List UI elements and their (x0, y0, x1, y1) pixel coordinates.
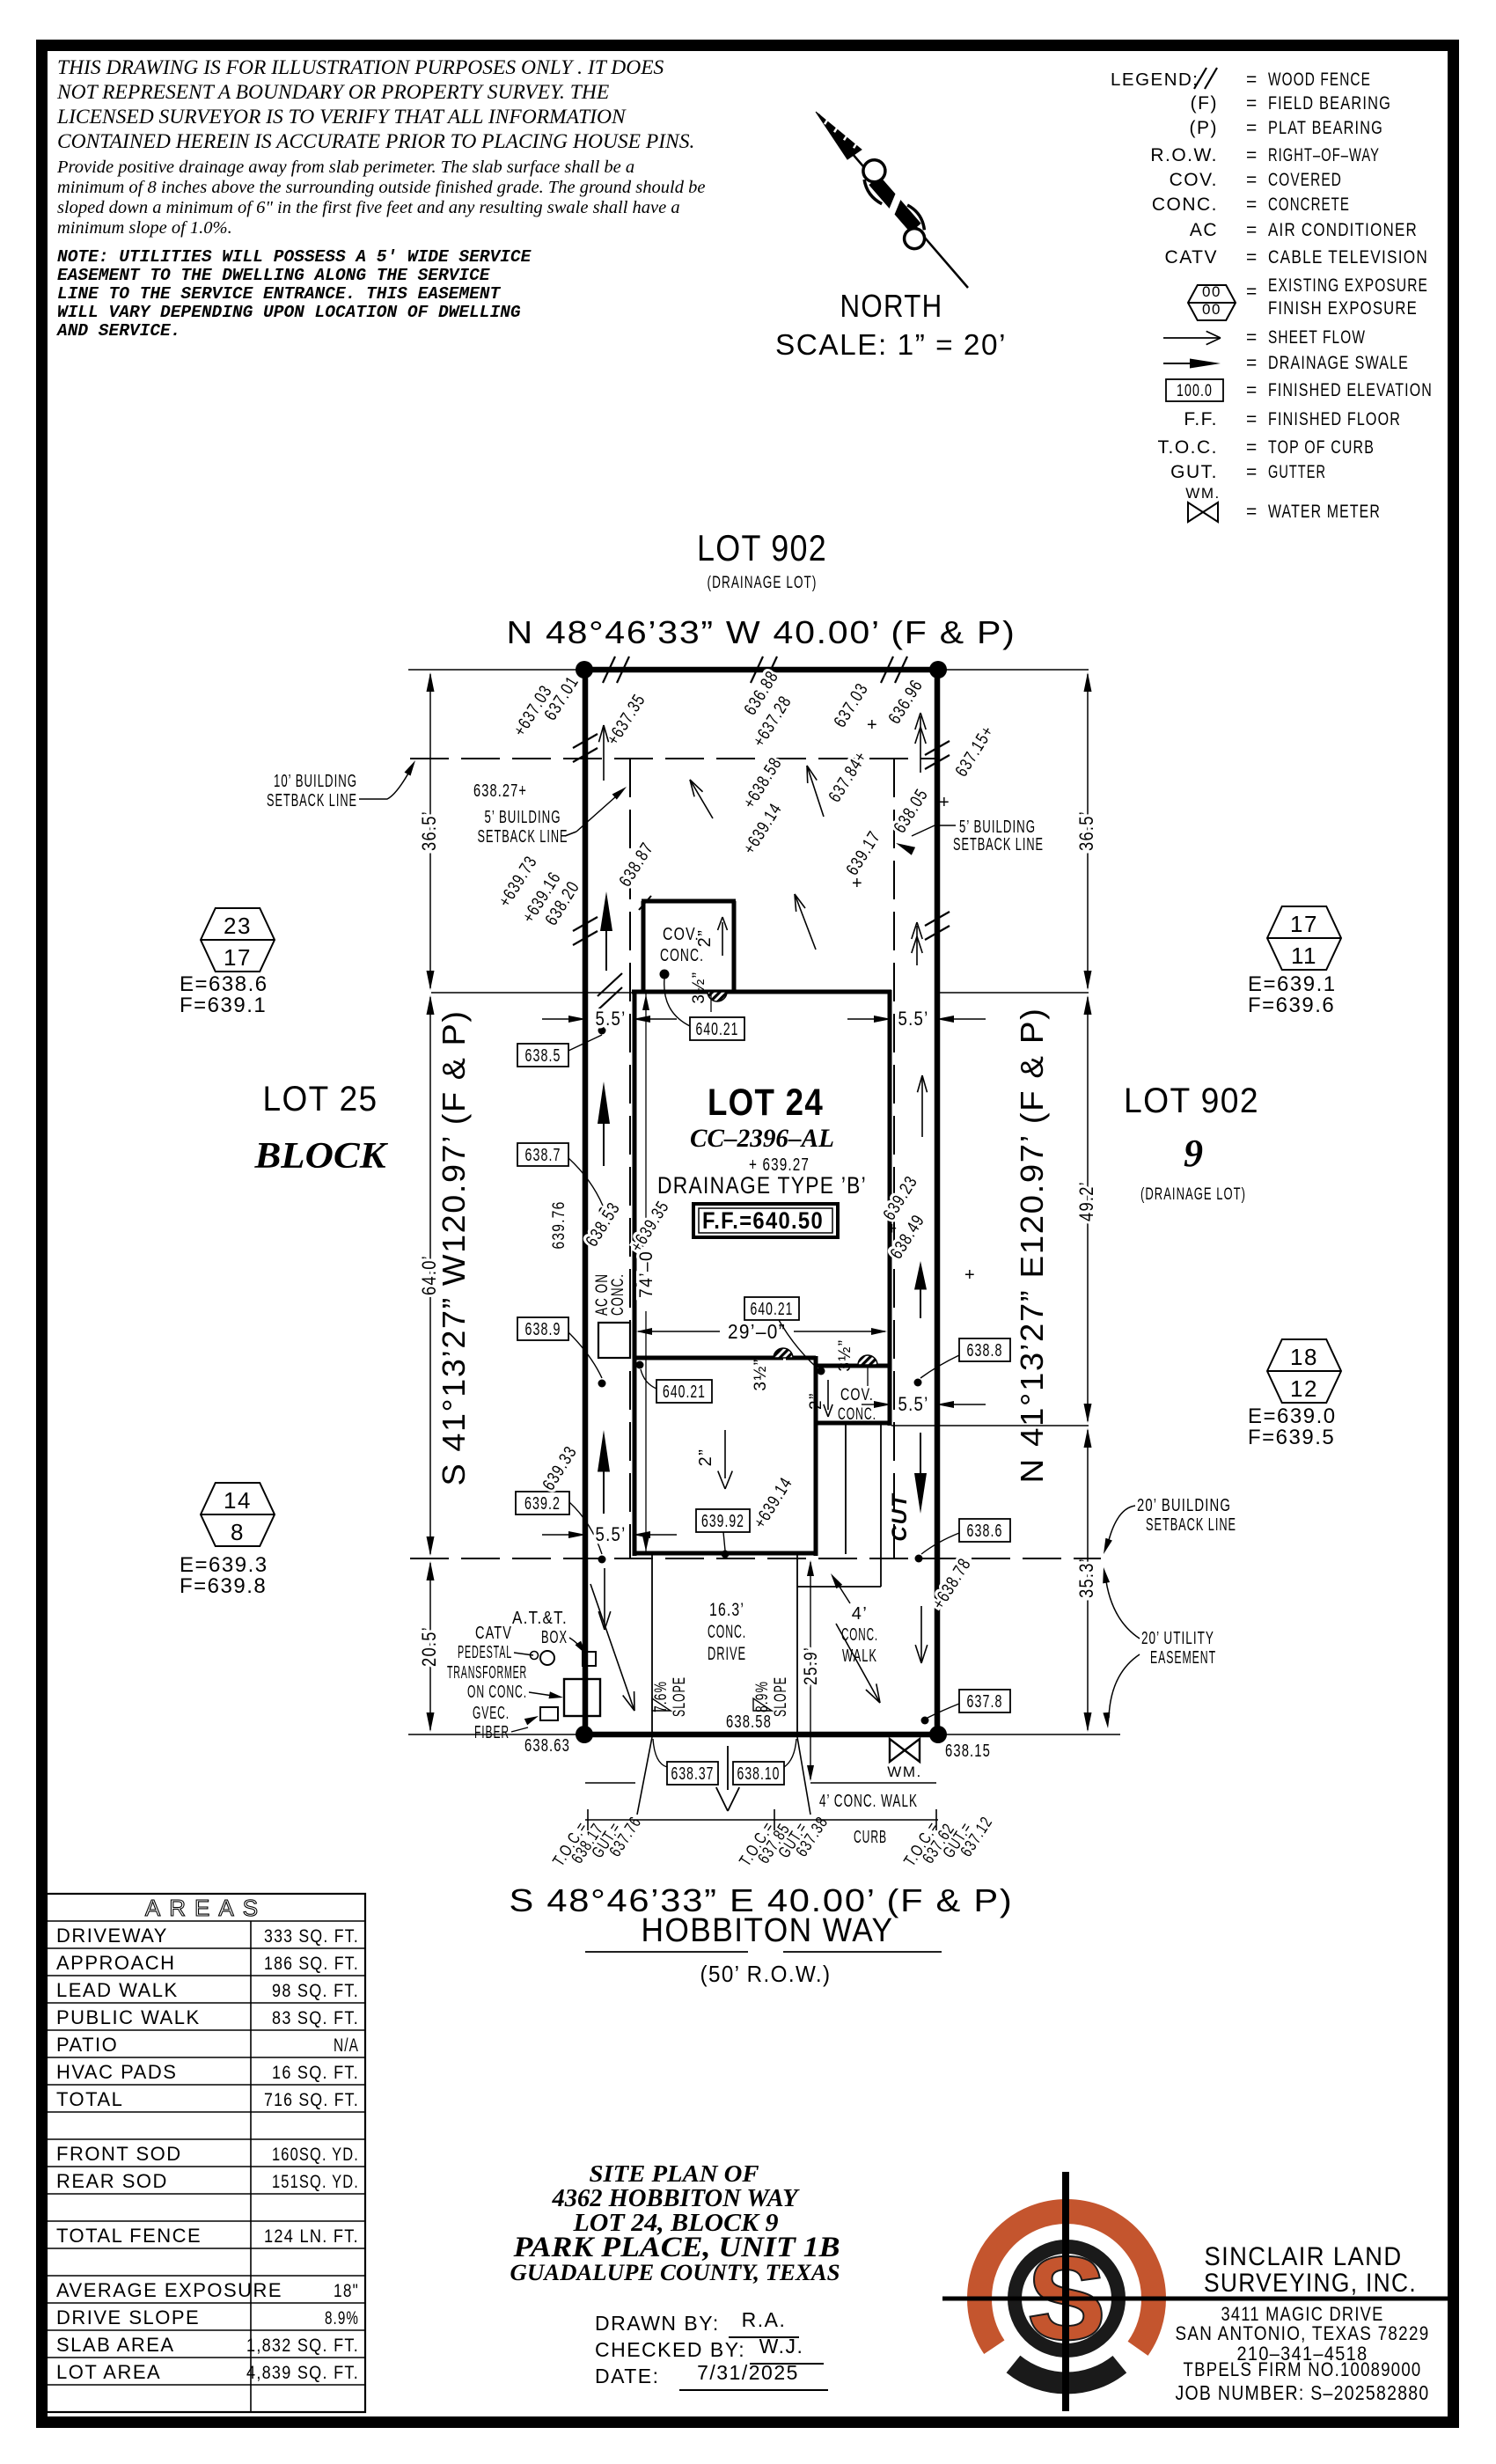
svg-text:638.9: 638.9 (525, 1320, 561, 1339)
svg-text:00: 00 (1202, 301, 1221, 318)
svg-text:F=639.5: F=639.5 (1248, 1426, 1335, 1449)
svg-text:R.O.W.: R.O.W. (1150, 145, 1218, 165)
svg-text:(P): (P) (1190, 118, 1219, 138)
svg-text:DRAWN BY:: DRAWN BY: (595, 2312, 720, 2335)
svg-text:TOP OF CURB: TOP OF CURB (1268, 437, 1375, 458)
svg-text:716 SQ. FT.: 716 SQ. FT. (264, 2089, 359, 2110)
svg-text:7.6%: 7.6% (652, 1681, 671, 1712)
svg-text:17: 17 (1290, 911, 1318, 937)
svg-text:2”: 2” (696, 1448, 715, 1467)
svg-text:=: = (1246, 409, 1258, 429)
svg-text:BOX: BOX (541, 1628, 568, 1647)
svg-text:17: 17 (224, 944, 252, 971)
svg-text:DRIVEWAY: DRIVEWAY (56, 1925, 168, 1947)
svg-text:=: = (1246, 118, 1258, 138)
svg-text:4’: 4’ (852, 1604, 869, 1624)
svg-text:+: + (939, 793, 950, 812)
svg-text:COVERED: COVERED (1268, 170, 1342, 190)
svg-text:14: 14 (224, 1487, 252, 1514)
svg-text:638.10: 638.10 (737, 1764, 781, 1784)
svg-text:F=639.8: F=639.8 (180, 1574, 267, 1598)
svg-text:RIGHT–OF–WAY: RIGHT–OF–WAY (1268, 145, 1380, 165)
svg-text:CUT: CUT (888, 1492, 912, 1542)
svg-text:20’ BUILDING: 20’ BUILDING (1137, 1496, 1231, 1515)
svg-text:SLOPE: SLOPE (671, 1676, 689, 1717)
svg-text:638.7: 638.7 (525, 1146, 561, 1165)
svg-text:5.5’: 5.5’ (898, 1008, 929, 1030)
svg-text:CATV: CATV (1165, 247, 1218, 268)
svg-text:98 SQ. FT.: 98 SQ. FT. (272, 1980, 359, 2001)
svg-text:LINE TO THE SERVICE ENTRANCE.: LINE TO THE SERVICE ENTRANCE. THIS EASEM… (57, 284, 501, 304)
svg-text:TOTAL FENCE: TOTAL FENCE (56, 2225, 202, 2247)
svg-text:LOT 902: LOT 902 (697, 527, 827, 568)
svg-text:NOT REPRESENT A BOUNDARY OR PR: NOT REPRESENT A BOUNDARY OR PROPERTY SUR… (56, 81, 609, 104)
svg-text:WALK: WALK (842, 1646, 877, 1666)
svg-text:SINCLAIR LAND: SINCLAIR LAND (1205, 2242, 1403, 2271)
svg-text:LOT 25: LOT 25 (263, 1080, 378, 1118)
svg-text:T.O.C.: T.O.C. (1157, 437, 1218, 458)
svg-text:FINISHED ELEVATION: FINISHED ELEVATION (1268, 380, 1433, 400)
svg-text:151SQ. YD.: 151SQ. YD. (272, 2171, 359, 2192)
svg-text:=: = (1246, 353, 1258, 373)
svg-text:=: = (1246, 145, 1258, 165)
svg-text:EASEMENT: EASEMENT (1150, 1648, 1216, 1668)
svg-text:PATIO: PATIO (56, 2034, 118, 2056)
svg-text:GUT.: GUT. (1170, 462, 1218, 482)
svg-text:4,839 SQ. FT.: 4,839 SQ. FT. (246, 2362, 359, 2383)
svg-text:23: 23 (224, 913, 252, 939)
svg-text:639.92: 639.92 (701, 1512, 744, 1531)
svg-text:AND SERVICE.: AND SERVICE. (56, 321, 180, 341)
svg-text:DATE:: DATE: (595, 2365, 660, 2387)
svg-text:36.5’: 36.5’ (1075, 810, 1097, 851)
svg-text:FRONT SOD: FRONT SOD (56, 2143, 182, 2165)
svg-text:COV.: COV. (840, 1386, 874, 1404)
svg-text:DRIVE SLOPE: DRIVE SLOPE (56, 2306, 200, 2328)
svg-text:GVEC.: GVEC. (473, 1704, 510, 1723)
svg-text:LOT 902: LOT 902 (1124, 1082, 1259, 1120)
svg-text:=: = (1246, 170, 1258, 190)
svg-text:=: = (1246, 70, 1258, 90)
svg-text:5.5’: 5.5’ (898, 1393, 929, 1415)
svg-text:5’ BUILDING: 5’ BUILDING (959, 818, 1036, 837)
svg-text:FINISH EXPOSURE: FINISH EXPOSURE (1268, 298, 1418, 319)
svg-text:JOB NUMBER: S–202582880: JOB NUMBER: S–202582880 (1176, 2381, 1430, 2404)
svg-text:638.5: 638.5 (525, 1046, 561, 1066)
svg-text:PLAT BEARING: PLAT BEARING (1268, 118, 1383, 138)
svg-text:EASEMENT TO THE DWELLING ALONG: EASEMENT TO THE DWELLING ALONG THE SERVI… (57, 266, 491, 285)
svg-text:CONTAINED HEREIN IS ACCURATE P: CONTAINED HEREIN IS ACCURATE PRIOR TO PL… (57, 130, 694, 153)
svg-text:16.3’: 16.3’ (709, 1600, 744, 1620)
svg-text:TBPELS FIRM NO.10089000: TBPELS FIRM NO.10089000 (1184, 2358, 1422, 2380)
svg-text:=: = (1246, 93, 1258, 114)
svg-text:=: = (1246, 247, 1258, 268)
svg-text:DRAINAGE TYPE ’B’: DRAINAGE TYPE ’B’ (657, 1172, 867, 1199)
svg-text:CONC.: CONC. (708, 1622, 746, 1642)
svg-text:minimum slope of 1.0%.: minimum slope of 1.0%. (57, 218, 232, 238)
svg-text:1,832 SQ. FT.: 1,832 SQ. FT. (246, 2335, 359, 2356)
svg-text:640.21: 640.21 (696, 1020, 739, 1039)
svg-text:4’ CONC. WALK: 4’ CONC. WALK (819, 1792, 918, 1811)
svg-text:49.2’: 49.2’ (1075, 1181, 1097, 1221)
svg-text:DRIVE: DRIVE (708, 1644, 746, 1664)
svg-text:AC: AC (1190, 220, 1218, 240)
svg-text:AVERAGE EXPOSURE: AVERAGE EXPOSURE (56, 2279, 282, 2301)
svg-text:COV.: COV. (663, 925, 700, 944)
svg-text:638.27+: 638.27+ (473, 781, 527, 801)
svg-text:R.A.: R.A. (742, 2308, 787, 2331)
svg-text:DRAINAGE SWALE: DRAINAGE SWALE (1268, 353, 1409, 373)
svg-text:FIBER: FIBER (474, 1723, 510, 1742)
svg-text:FINISHED FLOOR: FINISHED FLOOR (1268, 409, 1401, 429)
svg-text:3½”: 3½” (690, 971, 708, 1003)
svg-text:PARK PLACE, UNIT 1B: PARK PLACE, UNIT 1B (512, 2232, 840, 2263)
svg-text:+: + (852, 874, 863, 893)
svg-text:CONC.: CONC. (609, 1273, 627, 1316)
svg-text:SAN ANTONIO, TEXAS 78229: SAN ANTONIO, TEXAS 78229 (1176, 2322, 1430, 2344)
svg-text:PUBLIC WALK: PUBLIC WALK (56, 2006, 201, 2028)
svg-text:5.5’: 5.5’ (596, 1008, 627, 1030)
svg-text:=: = (1246, 220, 1258, 240)
svg-text:18": 18" (334, 2280, 359, 2301)
svg-text:AREAS: AREAS (145, 1895, 267, 1921)
svg-text:637.8: 637.8 (967, 1692, 1003, 1712)
svg-text:SETBACK LINE: SETBACK LINE (953, 835, 1044, 854)
svg-text:HOBBITON WAY: HOBBITON WAY (642, 1912, 894, 1949)
svg-text:124 LN. FT.: 124 LN. FT. (264, 2226, 359, 2247)
svg-text:SLOPE: SLOPE (772, 1676, 790, 1717)
svg-text:=: = (1246, 380, 1258, 400)
svg-text:SLAB AREA: SLAB AREA (56, 2334, 175, 2356)
svg-text:LEAD WALK: LEAD WALK (56, 1979, 179, 2001)
svg-text:BLOCK: BLOCK (253, 1136, 388, 1177)
svg-text:Provide positive drainage away: Provide positive drainage away from slab… (56, 158, 634, 177)
svg-text:WATER METER: WATER METER (1268, 502, 1381, 522)
svg-text:16 SQ. FT.: 16 SQ. FT. (272, 2062, 359, 2083)
svg-text:CONC.: CONC. (660, 946, 704, 965)
svg-text:638.58: 638.58 (726, 1712, 772, 1732)
svg-text:333 SQ. FT.: 333 SQ. FT. (264, 1925, 359, 1947)
svg-text:2”: 2” (695, 929, 715, 948)
svg-text:638.15: 638.15 (945, 1742, 991, 1761)
svg-text:SURVEYING, INC.: SURVEYING, INC. (1204, 2269, 1417, 2298)
svg-text:20.5’: 20.5’ (418, 1626, 440, 1667)
svg-text:(DRAINAGE LOT): (DRAINAGE LOT) (1140, 1185, 1246, 1204)
svg-text:29’–0”: 29’–0” (728, 1320, 786, 1343)
svg-text:=: = (1246, 502, 1258, 522)
svg-text:638.6: 638.6 (967, 1522, 1003, 1541)
svg-text:36.5’: 36.5’ (418, 810, 440, 851)
svg-text:2”: 2” (807, 1392, 825, 1410)
svg-text:4362 HOBBITON WAY: 4362 HOBBITON WAY (551, 2185, 800, 2212)
svg-text:=: = (1246, 462, 1258, 482)
svg-text:(50’ R.O.W.): (50’ R.O.W.) (700, 1961, 832, 1987)
svg-text:WM.: WM. (887, 1764, 921, 1780)
svg-text:639.2: 639.2 (524, 1494, 561, 1514)
svg-text:SITE PLAN OF: SITE PLAN OF (590, 2160, 759, 2187)
svg-text:=: = (1246, 437, 1258, 458)
svg-text:160SQ. YD.: 160SQ. YD. (272, 2144, 359, 2165)
svg-text:638.8: 638.8 (967, 1341, 1003, 1360)
svg-text:639.76: 639.76 (550, 1201, 568, 1250)
svg-text:=: = (1246, 194, 1258, 215)
svg-text:S 41°13’27” W120.97’ (F & P): S 41°13’27” W120.97’ (F & P) (436, 1010, 472, 1486)
svg-text:3½”: 3½” (836, 1338, 854, 1371)
svg-text:TRANSFORMER: TRANSFORMER (447, 1663, 527, 1683)
svg-text:638.37: 638.37 (671, 1764, 715, 1784)
svg-text:minimum of 8 inches above the: minimum of 8 inches above the surroundin… (57, 178, 705, 197)
svg-text:CABLE TELEVISION: CABLE TELEVISION (1268, 247, 1428, 268)
svg-text:AIR CONDITIONER: AIR CONDITIONER (1268, 220, 1418, 240)
svg-text:LOT 24: LOT 24 (708, 1082, 824, 1124)
svg-text:CONC.: CONC. (838, 1405, 876, 1424)
svg-text:00: 00 (1202, 283, 1221, 300)
svg-text:638.63: 638.63 (524, 1736, 570, 1756)
svg-text:CONC.: CONC. (1152, 194, 1218, 215)
svg-text:8: 8 (231, 1519, 245, 1545)
svg-text:E=638.6: E=638.6 (180, 972, 268, 996)
svg-text:+: + (867, 715, 878, 735)
svg-text:A.T.&T.: A.T.&T. (512, 1609, 568, 1628)
svg-text:CONC.: CONC. (841, 1625, 878, 1645)
svg-text:100.0: 100.0 (1177, 382, 1213, 400)
svg-text:=: = (1246, 327, 1258, 348)
svg-text:F.F.: F.F. (1184, 409, 1218, 429)
svg-text:REAR SOD: REAR SOD (56, 2170, 168, 2192)
svg-text:83 SQ. FT.: 83 SQ. FT. (272, 2007, 359, 2028)
svg-text:5.5’: 5.5’ (596, 1523, 627, 1545)
svg-text:SETBACK LINE: SETBACK LINE (1146, 1515, 1236, 1535)
svg-text:N/A: N/A (334, 2035, 359, 2056)
svg-text:7/31/2025: 7/31/2025 (697, 2361, 799, 2384)
svg-text:8.9%: 8.9% (753, 1681, 772, 1712)
svg-text:THIS DRAWING IS FOR ILLUSTRATI: THIS DRAWING IS FOR ILLUSTRATION PURPOSE… (57, 56, 664, 79)
svg-text:HVAC PADS: HVAC PADS (56, 2061, 177, 2083)
svg-text:FIELD BEARING: FIELD BEARING (1268, 93, 1391, 114)
svg-text:E=639.0: E=639.0 (1248, 1404, 1337, 1428)
svg-text:ON CONC.: ON CONC. (467, 1683, 527, 1702)
svg-text:SCALE: 1” = 20’: SCALE: 1” = 20’ (775, 328, 1007, 361)
svg-text:640.21: 640.21 (751, 1300, 794, 1319)
svg-text:GUADALUPE COUNTY, TEXAS: GUADALUPE COUNTY, TEXAS (510, 2260, 840, 2285)
svg-text:SETBACK LINE: SETBACK LINE (478, 827, 568, 847)
svg-text:SETBACK LINE: SETBACK LINE (267, 791, 357, 810)
svg-text:20’ UTILITY: 20’ UTILITY (1141, 1629, 1214, 1648)
svg-text:GUTTER: GUTTER (1268, 462, 1326, 482)
svg-text:N 48°46’33” W 40.00’ (F & P): N 48°46’33” W 40.00’ (F & P) (507, 614, 1016, 650)
svg-text:LEGEND:: LEGEND: (1111, 70, 1199, 90)
svg-text:(F): (F) (1191, 93, 1218, 114)
svg-text:186 SQ. FT.: 186 SQ. FT. (264, 1953, 359, 1974)
svg-text:NORTH: NORTH (840, 288, 943, 324)
svg-text:35.3’: 35.3’ (1075, 1558, 1097, 1598)
svg-text:sloped down a minimum of 6" in: sloped down a minimum of 6" in the first… (57, 198, 680, 217)
svg-text:E=639.1: E=639.1 (1248, 972, 1337, 996)
svg-text:CATV: CATV (475, 1624, 512, 1643)
svg-text:EXISTING EXPOSURE: EXISTING EXPOSURE (1268, 275, 1428, 296)
svg-text:PEDESTAL: PEDESTAL (458, 1643, 512, 1662)
svg-text:WM.: WM. (1185, 485, 1220, 502)
svg-text:APPROACH: APPROACH (56, 1952, 175, 1974)
svg-text:N 41°13’27” E120.97’ (F & P): N 41°13’27” E120.97’ (F & P) (1014, 1008, 1050, 1484)
svg-text:+: + (964, 1265, 976, 1285)
svg-text:CONCRETE: CONCRETE (1268, 194, 1350, 215)
svg-text:F.F.=640.50: F.F.=640.50 (702, 1207, 824, 1234)
svg-text:SHEET FLOW: SHEET FLOW (1268, 327, 1366, 348)
svg-text:5’ BUILDING: 5’ BUILDING (485, 808, 561, 827)
svg-text:WOOD FENCE: WOOD FENCE (1268, 70, 1371, 90)
svg-text:640.21: 640.21 (663, 1382, 706, 1402)
svg-text:LICENSED SURVEYOR IS TO VERIFY: LICENSED SURVEYOR IS TO VERIFY THAT ALL … (56, 106, 627, 128)
svg-text:E=639.3: E=639.3 (180, 1553, 268, 1577)
svg-text:3½”: 3½” (752, 1358, 770, 1390)
svg-text:8.9%: 8.9% (325, 2307, 359, 2328)
svg-text:TOTAL: TOTAL (56, 2088, 123, 2110)
svg-text:11: 11 (1291, 942, 1317, 969)
svg-text:CHECKED BY:: CHECKED BY: (595, 2338, 745, 2361)
svg-text:F=639.1: F=639.1 (180, 994, 267, 1017)
svg-text:(DRAINAGE LOT): (DRAINAGE LOT) (708, 574, 818, 592)
svg-text:25.9’: 25.9’ (801, 1646, 821, 1685)
svg-text:W.J.: W.J. (759, 2335, 804, 2358)
svg-text:COV.: COV. (1170, 170, 1218, 190)
svg-text:F=639.6: F=639.6 (1248, 994, 1335, 1017)
svg-text:NOTE: UTILITIES WILL POSSESS A: NOTE: UTILITIES WILL POSSESS A 5' WIDE S… (57, 247, 532, 267)
svg-text:WILL VARY DEPENDING UPON LOCAT: WILL VARY DEPENDING UPON LOCATION OF DWE… (57, 303, 521, 322)
svg-text:18: 18 (1290, 1344, 1318, 1370)
svg-text:9: 9 (1184, 1132, 1203, 1175)
svg-text:CURB: CURB (854, 1828, 887, 1847)
svg-text:12: 12 (1290, 1375, 1318, 1402)
svg-text:CC–2396–AL: CC–2396–AL (690, 1124, 834, 1153)
svg-text:10’ BUILDING: 10’ BUILDING (274, 772, 357, 791)
svg-text:=: = (1246, 282, 1258, 302)
svg-text:LOT AREA: LOT AREA (56, 2361, 161, 2383)
